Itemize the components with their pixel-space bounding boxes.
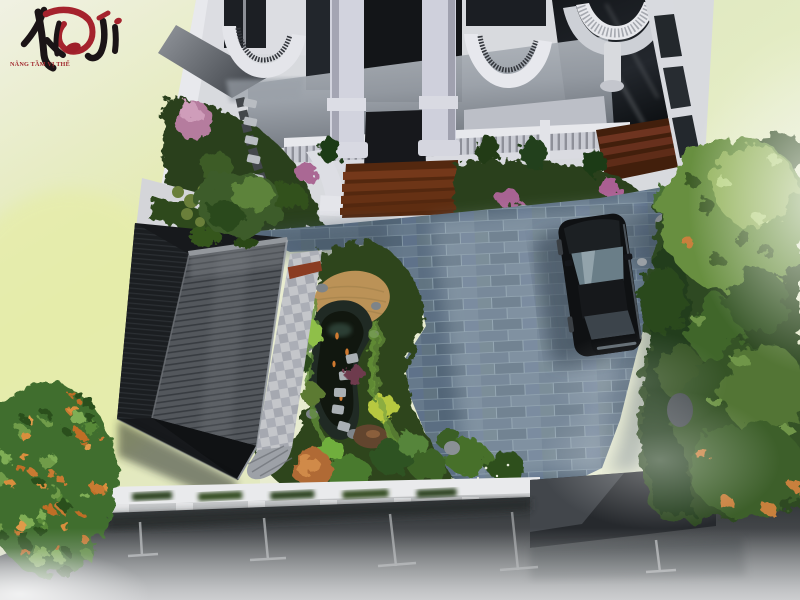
- svg-text:NÂNG TẦM VỊ THẾ: NÂNG TẦM VỊ THẾ: [10, 60, 70, 68]
